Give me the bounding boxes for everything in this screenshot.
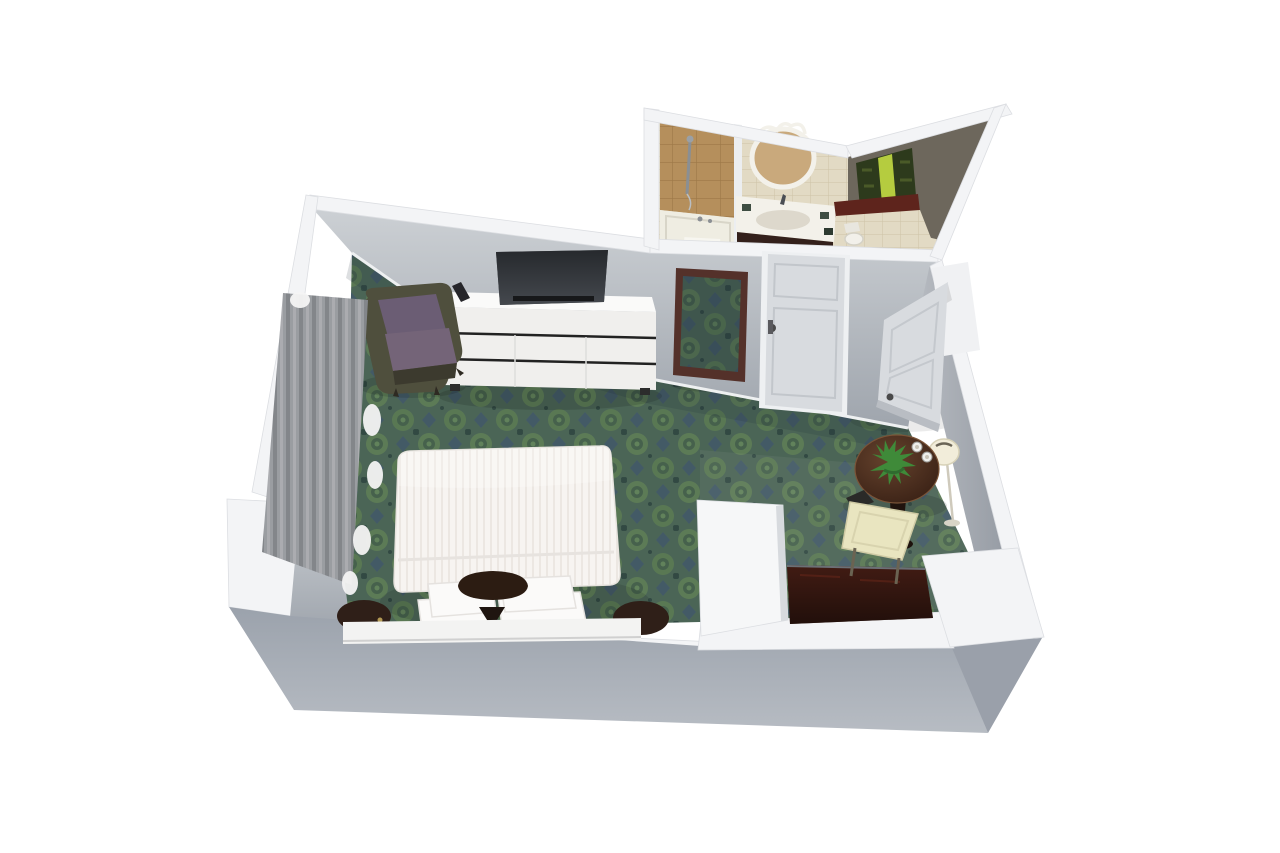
entry-door-handle-icon bbox=[887, 394, 894, 401]
headboard: White headboard bbox=[343, 618, 641, 644]
alcove-cabinet: Dark wood cabinet in alcove bbox=[787, 565, 933, 624]
accent-pillow: Dark accent cushion bbox=[458, 571, 528, 600]
tv-stand bbox=[513, 296, 594, 301]
tv: Flat-screen TV bbox=[496, 250, 608, 305]
bathroom-door: Bathroom door (closed) bbox=[759, 251, 850, 416]
bath-left-wall-band bbox=[644, 108, 659, 250]
partition-stub-wall bbox=[697, 500, 788, 636]
vanity-sink-bowl bbox=[756, 210, 810, 230]
dresser: White six-drawer TV dresser bbox=[443, 292, 656, 395]
leaning-mirror: Leaning floor mirror bbox=[673, 268, 748, 382]
floor-plan-svg: Green damask carpet Bathroom Shower fixt… bbox=[0, 0, 1280, 853]
floor-plan-render: 3D rendered top-down cutaway floor plan … bbox=[0, 0, 1280, 853]
